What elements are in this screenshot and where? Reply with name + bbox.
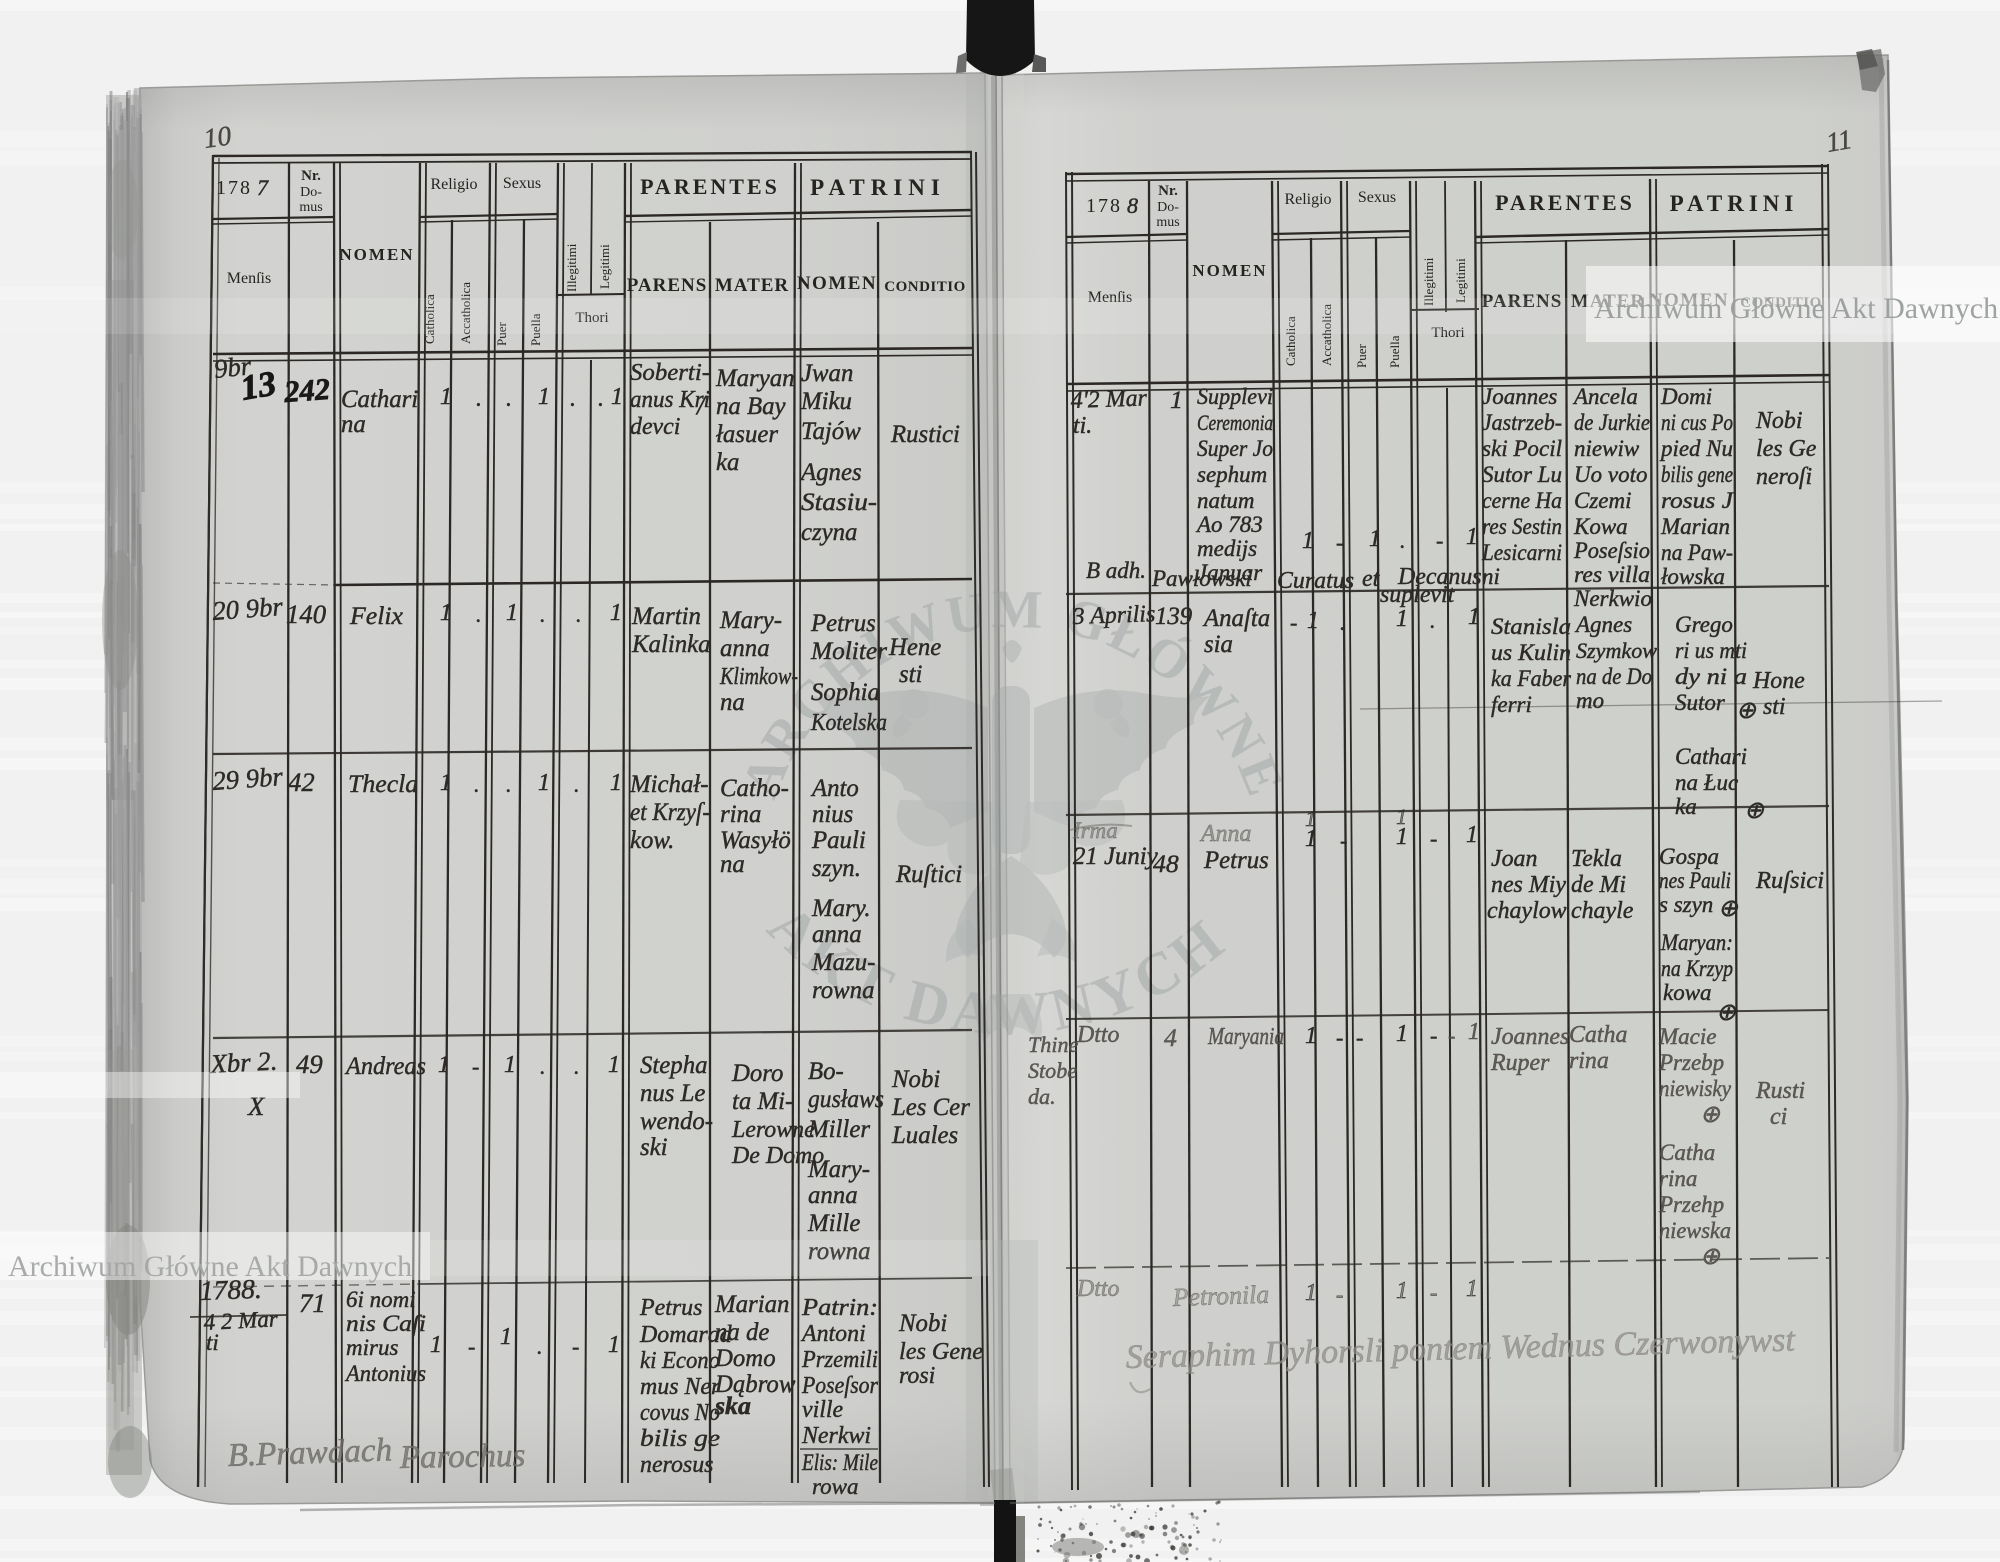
svg-text:.: .	[474, 772, 480, 797]
svg-text:-: -	[1436, 528, 1443, 553]
svg-text:Thine: Thine	[1028, 1032, 1079, 1057]
svg-text:⊕: ⊕	[1736, 698, 1757, 724]
svg-text:-: -	[472, 1054, 479, 1079]
svg-text:.: .	[574, 772, 580, 797]
svg-text:rina: rina	[1659, 1166, 1697, 1191]
svg-text:-: -	[1336, 1282, 1343, 1307]
svg-text:na de: na de	[715, 1319, 769, 1346]
svg-text:Religio: Religio	[430, 176, 477, 193]
svg-text:10: 10	[202, 119, 234, 154]
svg-text:.: .	[576, 602, 582, 627]
svg-text:Przehp: Przehp	[1658, 1192, 1724, 1217]
svg-text:71: 71	[299, 1288, 326, 1318]
svg-text:res Sestin: res Sestin	[1482, 514, 1562, 539]
svg-text:nus Le: nus Le	[640, 1080, 705, 1107]
svg-text:mus Ner: mus Ner	[640, 1374, 721, 1400]
svg-text:ski: ski	[640, 1134, 668, 1161]
svg-text:anna: anna	[808, 1182, 858, 1209]
svg-text:natum: natum	[1197, 488, 1255, 513]
svg-text:PATRINI: PATRINI	[810, 175, 946, 200]
svg-text:nius: nius	[812, 801, 853, 828]
svg-text:niewiw: niewiw	[1574, 436, 1640, 461]
svg-text:Bo-: Bo-	[808, 1058, 844, 1085]
svg-text:Nerkwi: Nerkwi	[801, 1423, 871, 1449]
svg-text:Lesicarni: Lesicarni	[1481, 540, 1562, 565]
svg-text:.: .	[540, 1054, 546, 1079]
svg-text:⊕: ⊕	[1744, 798, 1765, 824]
svg-text:devci: devci	[630, 414, 680, 440]
svg-text:242: 242	[282, 372, 331, 409]
svg-text:ni cus Po: ni cus Po	[1661, 410, 1733, 435]
svg-text:gusławs: gusławs	[808, 1086, 884, 1113]
svg-text:1: 1	[538, 770, 550, 796]
svg-text:Petrus: Petrus	[810, 610, 876, 637]
svg-text:Poseſsor: Poseſsor	[801, 1373, 879, 1399]
svg-text:ti.: ti.	[1073, 413, 1092, 439]
svg-text:20 9br: 20 9br	[211, 591, 284, 626]
svg-text:Petronila: Petronila	[1171, 1280, 1269, 1312]
svg-text:Tekla: Tekla	[1571, 846, 1622, 872]
svg-text:mirus: mirus	[346, 1335, 398, 1360]
svg-text:rosus J: rosus J	[1661, 488, 1735, 513]
svg-text:Kalinka: Kalinka	[631, 631, 711, 658]
svg-text:-: -	[1430, 1280, 1437, 1305]
svg-text:Miller: Miller	[807, 1116, 870, 1143]
svg-text:niewska: niewska	[1659, 1218, 1731, 1243]
svg-text:Anna: Anna	[1199, 821, 1251, 847]
svg-text:Supplevi: Supplevi	[1197, 384, 1273, 409]
svg-text:na de Do: na de Do	[1576, 664, 1652, 689]
svg-text:rosi: rosi	[899, 1363, 935, 1389]
svg-text:.: .	[506, 386, 512, 412]
svg-text:Przemili: Przemili	[801, 1347, 878, 1373]
svg-text:Mille: Mille	[807, 1210, 860, 1237]
svg-text:⊕: ⊕	[1718, 896, 1739, 922]
svg-text:49: 49	[296, 1049, 323, 1079]
svg-text:1: 1	[1170, 385, 1183, 414]
svg-text:Agnes: Agnes	[799, 459, 862, 486]
svg-text:.: .	[1430, 608, 1436, 633]
svg-text:Marian: Marian	[1660, 514, 1730, 539]
svg-text:⊕: ⊕	[1716, 1000, 1737, 1026]
svg-text:-: -	[1356, 1025, 1363, 1050]
svg-text:Agnes: Agnes	[1574, 612, 1632, 637]
svg-text:Nr.: Nr.	[1158, 183, 1178, 199]
svg-text:140: 140	[286, 599, 326, 629]
svg-text:Legitimi: Legitimi	[1453, 258, 1468, 303]
svg-text:1: 1	[1305, 1280, 1317, 1306]
svg-text:⊕: ⊕	[1700, 1244, 1721, 1270]
svg-text:Archiwum Główne Akt Dawnych: Archiwum Główne Akt Dawnych	[1594, 292, 1998, 325]
svg-text:B.Prawdach: B.Prawdach	[227, 1432, 393, 1474]
svg-text:Wasyłö: Wasyłö	[720, 827, 791, 854]
svg-text:Ancela: Ancela	[1572, 384, 1638, 409]
svg-text:PARENTES: PARENTES	[640, 174, 780, 199]
svg-text:rina: rina	[1569, 1048, 1609, 1074]
svg-text:1: 1	[1468, 1019, 1480, 1045]
svg-text:łasuer: łasuer	[716, 421, 778, 448]
svg-text:Rusti: Rusti	[1755, 1078, 1805, 1104]
svg-text:nerosus: nerosus	[640, 1452, 713, 1478]
svg-text:Moliter: Moliter	[810, 638, 887, 665]
svg-text:Ruper: Ruper	[1490, 1050, 1550, 1076]
svg-text:ka: ka	[1675, 794, 1697, 819]
svg-text:6i nomi: 6i nomi	[346, 1287, 416, 1312]
svg-text:sti: sti	[899, 661, 923, 688]
svg-text:Do-: Do-	[300, 185, 322, 200]
svg-text:nes Miy: nes Miy	[1491, 872, 1566, 898]
svg-text:rowa: rowa	[812, 1474, 858, 1499]
svg-text:Poseſsio: Poseſsio	[1573, 538, 1650, 563]
svg-text:NOMEN: NOMEN	[1192, 261, 1267, 280]
svg-text:Przebp: Przebp	[1658, 1050, 1724, 1075]
svg-text:1: 1	[1396, 804, 1407, 829]
svg-text:chaylow: chaylow	[1487, 898, 1567, 924]
svg-text:Sutor: Sutor	[1675, 690, 1726, 715]
svg-text:wendo-: wendo-	[640, 1108, 713, 1135]
svg-text:medijs: medijs	[1197, 536, 1257, 561]
svg-text:.: .	[476, 386, 482, 412]
svg-text:1: 1	[504, 1052, 516, 1078]
svg-text:Elis: Mile: Elis: Mile	[801, 1450, 878, 1475]
svg-text:Nobi: Nobi	[898, 1310, 947, 1337]
svg-text:Ruſsici: Ruſsici	[1755, 868, 1824, 894]
svg-text:Petrus: Petrus	[1203, 847, 1269, 874]
svg-text:bilis ge: bilis ge	[640, 1426, 720, 1452]
svg-text:4'2 Mar: 4'2 Mar	[1070, 385, 1148, 414]
svg-text:Illegitimi: Illegitimi	[564, 243, 579, 292]
svg-text:us Kulin: us Kulin	[1491, 640, 1571, 665]
svg-text:sephum: sephum	[1197, 462, 1267, 487]
svg-text:nis Caſi: nis Caſi	[346, 1311, 426, 1336]
svg-text:les Gene: les Gene	[899, 1339, 983, 1365]
svg-text:1: 1	[1396, 606, 1408, 632]
svg-text:1: 1	[1396, 1278, 1408, 1304]
svg-text:178: 178	[216, 177, 252, 199]
svg-text:Joannes: Joannes	[1491, 1024, 1569, 1050]
svg-text:Jastrzeb-: Jastrzeb-	[1482, 410, 1562, 435]
svg-text:Szymkow: Szymkow	[1576, 638, 1657, 663]
svg-text:1: 1	[608, 1052, 620, 1078]
svg-text:mo: mo	[1576, 688, 1604, 713]
svg-text:ri us mti: ri us mti	[1675, 638, 1747, 663]
svg-text:ka Faber: ka Faber	[1491, 666, 1572, 691]
svg-text:łowska: łowska	[1661, 564, 1725, 589]
svg-text:.: .	[537, 1334, 543, 1359]
svg-text:.: .	[1400, 528, 1406, 553]
svg-text:cerne Ha: cerne Ha	[1482, 488, 1562, 513]
svg-text:mus: mus	[299, 200, 322, 215]
svg-text:kowa: kowa	[1663, 980, 1712, 1005]
svg-text:ni: ni	[1482, 564, 1500, 589]
svg-text:.: .	[476, 602, 482, 627]
svg-text:3 Aprilis: 3 Aprilis	[1071, 601, 1155, 630]
svg-text:.: .	[598, 386, 604, 412]
svg-text:PATRINI: PATRINI	[1670, 191, 1799, 216]
svg-text:.: .	[506, 772, 512, 797]
svg-text:Menſis: Menſis	[227, 270, 271, 287]
svg-text:Ruſtici: Ruſtici	[895, 861, 962, 888]
svg-text:Cathari: Cathari	[1675, 744, 1747, 769]
svg-text:pied Nu: pied Nu	[1659, 436, 1733, 461]
svg-text:CONDITIO: CONDITIO	[884, 279, 966, 295]
svg-text:-: -	[1336, 530, 1343, 555]
svg-text:szyn.: szyn.	[812, 855, 861, 882]
svg-text:8: 8	[1127, 193, 1138, 218]
svg-text:.: .	[574, 1054, 580, 1079]
svg-text:.: .	[570, 386, 576, 412]
svg-text:1: 1	[610, 770, 622, 796]
svg-text:Rustici: Rustici	[890, 421, 960, 448]
svg-text:et Krzyſ-: et Krzyſ-	[630, 799, 710, 826]
svg-text:Antonius: Antonius	[344, 1361, 426, 1386]
svg-text:-: -	[1336, 1025, 1343, 1050]
svg-text:B adh.: B adh.	[1086, 558, 1146, 583]
svg-text:1: 1	[611, 384, 623, 410]
svg-text:-: -	[1430, 1023, 1437, 1048]
svg-text:neroſi: neroſi	[1756, 464, 1812, 490]
svg-text:-: -	[1290, 610, 1297, 635]
svg-text:-: -	[1430, 826, 1437, 851]
svg-text:anna: anna	[812, 921, 862, 948]
svg-text:42: 42	[288, 767, 315, 797]
svg-text:Catho-: Catho-	[720, 775, 789, 802]
svg-text:Nr.: Nr.	[301, 168, 321, 184]
svg-text:Stobe: Stobe	[1028, 1058, 1077, 1083]
svg-text:1: 1	[538, 384, 550, 410]
svg-text:1: 1	[1305, 1023, 1317, 1049]
svg-text:Anaſta: Anaſta	[1202, 605, 1270, 632]
svg-text:ka: ka	[716, 449, 739, 476]
svg-text:Felix: Felix	[349, 601, 404, 630]
svg-text:Klimkow-: Klimkow-	[719, 664, 798, 690]
svg-text:1: 1	[1369, 526, 1381, 552]
svg-text:Domi: Domi	[1660, 384, 1712, 409]
svg-text:1: 1	[438, 1052, 450, 1078]
svg-text:1: 1	[500, 1324, 512, 1350]
svg-text:Religio: Religio	[1284, 191, 1331, 208]
svg-text:Marian: Marian	[714, 1291, 789, 1318]
svg-text:Kotelska: Kotelska	[810, 710, 887, 736]
svg-text:sti: sti	[1763, 694, 1786, 720]
svg-text:Nobi: Nobi	[891, 1066, 940, 1093]
svg-text:suplevit: suplevit	[1380, 582, 1456, 608]
svg-text:PARENS: PARENS	[627, 275, 708, 296]
svg-text:Super Jo: Super Jo	[1197, 436, 1273, 461]
svg-text:les Ge: les Ge	[1756, 436, 1817, 462]
svg-text:s szyn: s szyn	[1659, 892, 1713, 917]
svg-text:11: 11	[1824, 123, 1855, 158]
svg-text:Archiwum Główne Akt Dawnych: Archiwum Główne Akt Dawnych	[8, 1250, 412, 1283]
svg-text:anna: anna	[720, 635, 770, 662]
svg-text:de Mi: de Mi	[1571, 872, 1626, 898]
svg-text:4: 4	[1164, 1023, 1177, 1052]
svg-text:Doro: Doro	[731, 1060, 783, 1087]
svg-text:1: 1	[506, 600, 518, 626]
svg-text:rowna: rowna	[812, 977, 874, 1004]
svg-text:Do-: Do-	[1157, 200, 1179, 215]
svg-text:1: 1	[440, 384, 452, 410]
svg-text:13: 13	[238, 363, 279, 407]
svg-text:29 9br: 29 9br	[211, 761, 284, 796]
svg-text:139: 139	[1155, 603, 1192, 630]
svg-text:Parochus: Parochus	[399, 1438, 526, 1476]
svg-text:-: -	[1340, 828, 1347, 853]
svg-text:Stepha: Stepha	[640, 1052, 708, 1079]
svg-text:Cathari: Cathari	[341, 386, 418, 413]
svg-text:da.: da.	[1028, 1084, 1056, 1109]
svg-text:na Łuc: na Łuc	[1675, 770, 1738, 795]
svg-text:Michał-: Michał-	[629, 771, 709, 798]
svg-text:1: 1	[440, 770, 452, 796]
svg-text:Thecla: Thecla	[348, 769, 418, 798]
svg-text:-: -	[1448, 1023, 1455, 1048]
svg-text:Maryan: Maryan	[715, 365, 795, 392]
svg-text:Maryania: Maryania	[1207, 1024, 1284, 1050]
svg-text:na Krzyp: na Krzyp	[1661, 956, 1733, 981]
svg-text:Kowa: Kowa	[1573, 514, 1628, 539]
svg-text:1: 1	[610, 600, 622, 626]
svg-text:1: 1	[608, 1332, 620, 1358]
svg-text:MATER: MATER	[715, 275, 789, 296]
svg-text:Miku: Miku	[800, 388, 852, 415]
svg-text:178: 178	[1086, 195, 1122, 217]
svg-text:kow.: kow.	[630, 827, 674, 854]
svg-text:1: 1	[1466, 1276, 1478, 1302]
svg-text:Jwan: Jwan	[801, 360, 853, 387]
svg-text:⊕: ⊕	[1700, 1102, 1721, 1128]
svg-text:Uo voto: Uo voto	[1574, 462, 1647, 487]
svg-text:NOMEN: NOMEN	[339, 245, 414, 264]
svg-text:1: 1	[1396, 1021, 1408, 1047]
svg-text:ski Pocil: ski Pocil	[1482, 436, 1562, 461]
svg-text:Luales: Luales	[891, 1122, 958, 1149]
svg-text:1: 1	[1302, 528, 1314, 554]
svg-text:bilis gene: bilis gene	[1661, 462, 1733, 487]
svg-text:Macie: Macie	[1658, 1024, 1716, 1049]
svg-text:Catha: Catha	[1569, 1022, 1627, 1048]
svg-text:Antoni: Antoni	[800, 1321, 866, 1347]
svg-text:Joannes: Joannes	[1482, 384, 1557, 409]
svg-text:res villa: res villa	[1574, 562, 1650, 587]
svg-text:na Bay: na Bay	[716, 393, 787, 420]
svg-text:na Paw-: na Paw-	[1661, 540, 1733, 565]
svg-text:Andreas: Andreas	[344, 1051, 426, 1080]
svg-text:dy ni a: dy ni a	[1675, 664, 1747, 689]
svg-text:Nobi: Nobi	[1755, 408, 1802, 434]
svg-text:Martin: Martin	[631, 603, 701, 630]
svg-text:Puella: Puella	[1387, 335, 1402, 368]
svg-text:1: 1	[1466, 822, 1478, 848]
svg-text:ska: ska	[714, 1391, 751, 1420]
svg-text:covus No: covus No	[640, 1400, 720, 1426]
svg-text:Mary-: Mary-	[807, 1156, 870, 1183]
svg-text:Sutor Lu: Sutor Lu	[1482, 462, 1562, 487]
svg-text:rina: rina	[720, 801, 761, 828]
svg-text:na: na	[341, 411, 366, 438]
svg-text:czyna: czyna	[801, 519, 857, 546]
svg-text:Soberti-: Soberti-	[630, 360, 710, 386]
svg-text:Mazu-: Mazu-	[811, 949, 875, 976]
svg-text:Catha: Catha	[1659, 1140, 1715, 1165]
svg-text:Anto: Anto	[810, 775, 859, 802]
svg-text:1: 1	[1468, 604, 1480, 630]
svg-text:Gospa: Gospa	[1659, 844, 1719, 869]
svg-text:Ceremonia: Ceremonia	[1197, 410, 1273, 435]
svg-text:Legitimi: Legitimi	[597, 244, 612, 289]
svg-text:Pawłowski: Pawłowski	[1151, 566, 1252, 591]
svg-text:Dtto: Dtto	[1076, 1022, 1120, 1048]
svg-text:Sophia: Sophia	[811, 679, 880, 706]
svg-text:ci: ci	[1770, 1104, 1787, 1130]
svg-text:Puer: Puer	[1354, 344, 1369, 369]
svg-text:Ao 783: Ao 783	[1195, 512, 1263, 537]
svg-text:ferri: ferri	[1491, 692, 1532, 717]
svg-text:1: 1	[440, 600, 452, 626]
svg-text:Nerkwio: Nerkwio	[1573, 586, 1652, 611]
svg-text:-: -	[468, 1334, 475, 1359]
svg-text:Hone: Hone	[1752, 668, 1805, 694]
svg-text:PARENTES: PARENTES	[1495, 190, 1635, 215]
svg-text:1: 1	[1307, 608, 1319, 634]
svg-text:Sexus: Sexus	[1358, 189, 1396, 206]
svg-text:ti: ti	[206, 1330, 219, 1355]
svg-text:ki Econo: ki Econo	[640, 1348, 720, 1374]
svg-text:Lerowne: Lerowne	[731, 1117, 815, 1143]
svg-text:na: na	[720, 851, 745, 878]
svg-text:1: 1	[1466, 524, 1478, 550]
svg-text:ville: ville	[802, 1397, 844, 1423]
svg-text:.: .	[540, 602, 546, 627]
svg-text:Stanisla: Stanisla	[1491, 614, 1571, 639]
svg-text:Pauli: Pauli	[811, 827, 866, 854]
svg-text:1: 1	[430, 1332, 442, 1358]
svg-text:chayle: chayle	[1571, 898, 1634, 924]
svg-text:niewisky: niewisky	[1659, 1076, 1732, 1101]
svg-text:Tajów: Tajów	[801, 418, 861, 445]
svg-text:Mary-: Mary-	[719, 607, 782, 634]
svg-text:Irma: Irma	[1072, 818, 1118, 843]
svg-text:Les Cer: Les Cer	[891, 1094, 970, 1121]
svg-text:Curatus: Curatus	[1277, 568, 1354, 594]
svg-text:Czemi: Czemi	[1574, 488, 1632, 513]
svg-text:21 Juniy: 21 Juniy	[1073, 843, 1159, 870]
svg-text:Petrus: Petrus	[639, 1295, 702, 1321]
svg-text:ta Mi-: ta Mi-	[732, 1088, 793, 1115]
svg-text:Sexus: Sexus	[503, 175, 541, 192]
svg-text:Dtto: Dtto	[1076, 1276, 1120, 1302]
svg-text:mus: mus	[1156, 215, 1179, 230]
svg-text:sia: sia	[1204, 631, 1233, 658]
svg-text:nes Pauli: nes Pauli	[1659, 868, 1731, 893]
svg-text:7: 7	[257, 175, 269, 200]
svg-text:.: .	[1340, 610, 1346, 635]
svg-text:Joan: Joan	[1491, 846, 1537, 872]
svg-text:Stasiu-: Stasiu-	[801, 489, 877, 516]
svg-text:Mary.: Mary.	[811, 895, 871, 922]
svg-text:-: -	[572, 1334, 579, 1359]
svg-text:Grego: Grego	[1675, 612, 1733, 637]
svg-text:Patrin:: Patrin:	[801, 1295, 878, 1321]
svg-text:Hene: Hene	[888, 634, 941, 661]
svg-text:na: na	[720, 689, 745, 716]
svg-text:Domo: Domo	[714, 1345, 776, 1372]
svg-text:Maryan:: Maryan:	[1660, 930, 1733, 955]
svg-text:48: 48	[1153, 849, 1179, 878]
svg-text:NOMEN: NOMEN	[797, 273, 877, 294]
svg-text:1: 1	[1305, 806, 1316, 831]
svg-text:et: et	[1362, 566, 1381, 592]
